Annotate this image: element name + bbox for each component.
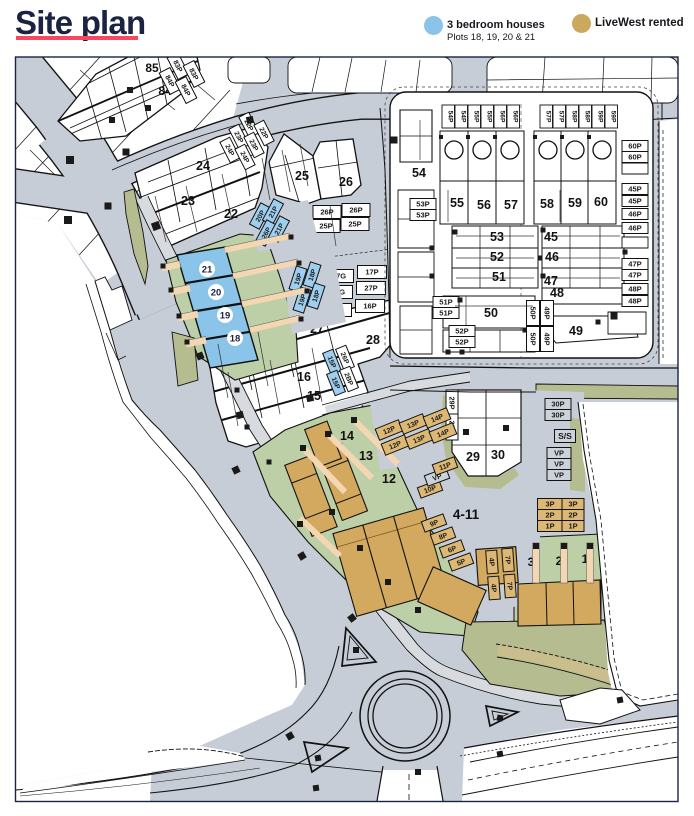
svg-text:16: 16 xyxy=(297,370,311,384)
svg-text:60P: 60P xyxy=(628,142,642,151)
svg-text:48P: 48P xyxy=(628,297,642,306)
svg-text:20: 20 xyxy=(211,287,222,298)
svg-text:52P: 52P xyxy=(455,327,469,336)
svg-text:18: 18 xyxy=(230,333,241,344)
svg-text:45P: 45P xyxy=(628,197,642,206)
svg-text:7P: 7P xyxy=(505,582,513,591)
svg-text:4-11: 4-11 xyxy=(453,507,480,522)
svg-text:57P: 57P xyxy=(558,111,565,123)
svg-text:2P: 2P xyxy=(568,511,577,520)
svg-text:26: 26 xyxy=(339,175,353,189)
svg-text:VP: VP xyxy=(554,471,564,480)
svg-text:52P: 52P xyxy=(455,338,469,347)
svg-text:S/S: S/S xyxy=(558,431,572,441)
svg-text:25P: 25P xyxy=(348,220,361,229)
svg-text:60: 60 xyxy=(594,195,608,209)
svg-text:46P: 46P xyxy=(628,224,642,233)
svg-text:25P: 25P xyxy=(319,222,332,231)
svg-text:2P: 2P xyxy=(545,511,554,520)
svg-text:14: 14 xyxy=(340,429,354,443)
svg-text:50P: 50P xyxy=(528,333,537,346)
svg-text:16P: 16P xyxy=(363,302,376,311)
svg-text:55P: 55P xyxy=(473,111,480,123)
svg-text:59P: 59P xyxy=(597,111,604,123)
svg-text:50: 50 xyxy=(484,306,498,320)
svg-text:28: 28 xyxy=(366,333,380,347)
svg-text:53: 53 xyxy=(490,230,504,244)
svg-text:4P: 4P xyxy=(489,584,497,593)
svg-text:19: 19 xyxy=(220,310,231,321)
svg-text:1P: 1P xyxy=(568,522,577,531)
svg-text:29: 29 xyxy=(466,450,480,464)
svg-text:58P: 58P xyxy=(584,111,591,123)
svg-text:59: 59 xyxy=(568,196,582,210)
svg-text:50P: 50P xyxy=(528,307,537,320)
svg-text:7P: 7P xyxy=(503,556,511,565)
svg-text:52: 52 xyxy=(490,250,504,264)
svg-text:4P: 4P xyxy=(487,558,495,567)
svg-text:54P: 54P xyxy=(460,111,467,123)
svg-text:58P: 58P xyxy=(571,111,578,123)
svg-text:46: 46 xyxy=(545,250,559,264)
svg-text:12: 12 xyxy=(382,472,396,486)
svg-text:53P: 53P xyxy=(416,200,430,209)
svg-text:30P: 30P xyxy=(551,400,564,409)
svg-text:54P: 54P xyxy=(447,111,454,123)
svg-text:23: 23 xyxy=(181,194,195,208)
svg-text:26P: 26P xyxy=(349,206,362,215)
svg-text:17P: 17P xyxy=(365,268,378,277)
svg-text:3P: 3P xyxy=(545,500,554,509)
svg-text:51P: 51P xyxy=(439,309,453,318)
svg-text:56: 56 xyxy=(477,198,491,212)
svg-text:59P: 59P xyxy=(610,111,617,123)
svg-text:54: 54 xyxy=(412,166,426,180)
svg-text:29P: 29P xyxy=(447,397,456,410)
svg-text:51: 51 xyxy=(492,270,506,284)
svg-text:57: 57 xyxy=(504,198,518,212)
svg-text:57P: 57P xyxy=(545,111,552,123)
svg-text:1P: 1P xyxy=(545,522,554,531)
svg-text:60P: 60P xyxy=(628,153,642,162)
svg-text:30P: 30P xyxy=(551,411,564,420)
svg-text:51P: 51P xyxy=(439,298,453,307)
svg-text:45P: 45P xyxy=(628,185,642,194)
svg-text:VP: VP xyxy=(554,449,564,458)
svg-text:30: 30 xyxy=(491,448,505,462)
svg-text:47P: 47P xyxy=(628,271,642,280)
svg-text:49: 49 xyxy=(569,324,583,338)
svg-text:56P: 56P xyxy=(499,111,506,123)
svg-text:27P: 27P xyxy=(364,284,377,293)
svg-text:48: 48 xyxy=(550,286,564,300)
svg-text:58: 58 xyxy=(540,197,554,211)
svg-text:49P: 49P xyxy=(542,333,551,346)
svg-text:55P: 55P xyxy=(486,111,493,123)
svg-text:47P: 47P xyxy=(628,260,642,269)
svg-text:49P: 49P xyxy=(542,307,551,320)
svg-text:VP: VP xyxy=(554,460,564,469)
svg-text:48P: 48P xyxy=(628,285,642,294)
svg-text:53P: 53P xyxy=(416,211,430,220)
svg-text:46P: 46P xyxy=(628,210,642,219)
svg-text:56P: 56P xyxy=(512,111,519,123)
svg-text:45: 45 xyxy=(544,230,558,244)
svg-text:21: 21 xyxy=(202,264,213,275)
svg-text:3P: 3P xyxy=(568,500,577,509)
svg-text:24: 24 xyxy=(196,159,210,173)
svg-text:55: 55 xyxy=(450,196,464,210)
svg-text:85: 85 xyxy=(145,61,159,75)
svg-text:13: 13 xyxy=(359,449,373,463)
